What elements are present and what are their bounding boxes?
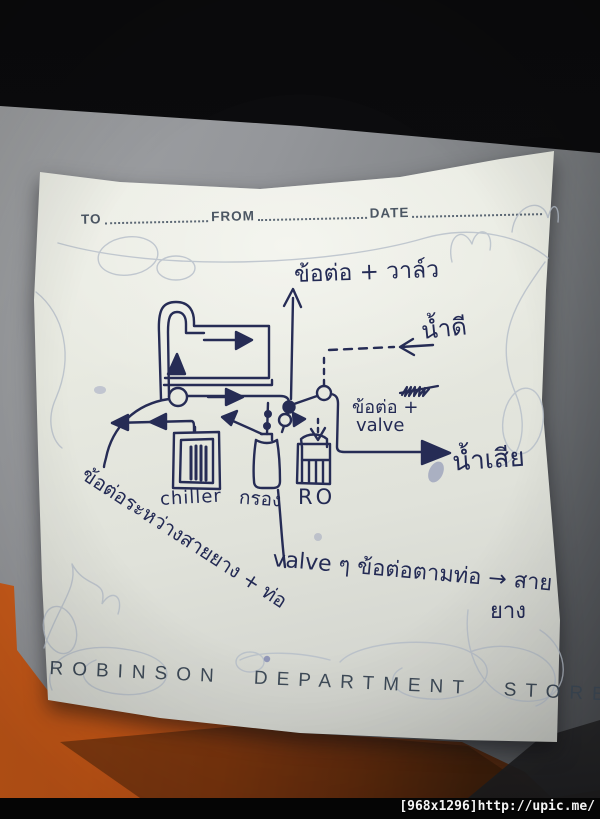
clean-water-branch-drawing: [294, 339, 433, 404]
label-valve-note-line1: valve ๆ ข้อต่อตามท่อ → สาย: [271, 547, 553, 596]
return-arrows-drawing: [112, 411, 262, 434]
label-valve-note-line2: ยาง: [490, 599, 526, 624]
label-filter: กรอง: [238, 487, 282, 512]
valve-below-junction-drawing: [279, 412, 305, 432]
chiller-unit-drawing: [173, 427, 220, 489]
handwritten-labels: ข้อต่อ + วาล์ว น้ำดี น้ำเสีย ข้อต่อ + va…: [77, 256, 553, 624]
crossed-out-scribble: [400, 386, 438, 396]
label-clean-water: น้ำดี: [420, 308, 469, 345]
main-pipe-drawing: [169, 388, 295, 413]
label-ro: RO: [298, 485, 335, 509]
watermark-text: [968x1296]http://upic.me/: [399, 799, 595, 814]
label-chiller: chiller: [160, 486, 223, 510]
ro-unit-drawing: [297, 419, 330, 484]
chiller-coil-drawing: [159, 302, 272, 399]
photo-of-memo-note: TO FROM DATE: [0, 0, 600, 819]
label-connector-line2: valve: [356, 415, 404, 436]
label-hose-pipe-connector: ข้อต่อระหว่างสายยาง + ท่อ: [77, 462, 291, 613]
label-connector-valve-top: ข้อต่อ + วาล์ว: [294, 256, 440, 288]
up-arrow-to-connector-valve: [284, 289, 301, 399]
filter-line-drawing: [254, 403, 280, 488]
label-waste-water: น้ำเสีย: [451, 438, 526, 478]
